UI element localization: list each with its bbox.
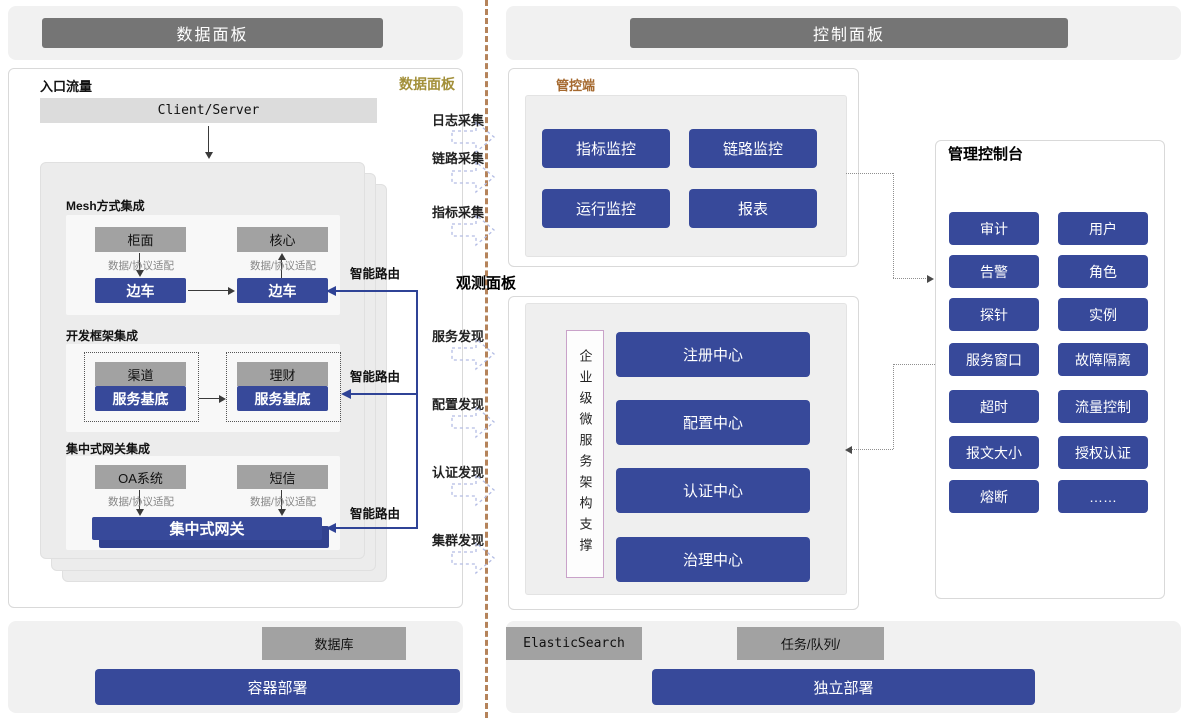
smart-route-branch1-line — [334, 290, 418, 292]
node-governance-center-label: 治理中心 — [683, 549, 743, 570]
node-report: 报表 — [689, 189, 817, 228]
architecture-diagram: 数据面板 控制面板 入口流量 数据面板 Client/Server Mesh方式… — [0, 0, 1189, 720]
mesh-left-adapter-label: 数据/协议适配 — [97, 258, 185, 273]
node-alert: 告警 — [949, 255, 1039, 288]
framework-base-right-label: 服务基底 — [255, 389, 311, 409]
node-message-size-label: 报文大小 — [966, 443, 1022, 463]
mesh-counter-label: 柜面 — [127, 230, 153, 249]
smart-route-branch2-line — [349, 393, 418, 395]
connector-a-arrowhead — [927, 275, 934, 283]
framework-arrow-line — [199, 398, 220, 399]
smart-route-branch3-line — [334, 527, 418, 529]
node-fault-isolation: 故障隔离 — [1058, 343, 1148, 376]
node-instance: 实例 — [1058, 298, 1148, 331]
database-label: 数据库 — [314, 634, 353, 653]
mesh-core-node: 核心 — [237, 227, 328, 252]
microservice-support-box: 企业级微服务架构支撑 — [566, 330, 604, 578]
mesh-core-label: 核心 — [269, 230, 295, 249]
node-config-center-label: 配置中心 — [683, 412, 743, 433]
database-node: 数据库 — [262, 627, 406, 660]
smart-route-branch2-arrowhead — [341, 389, 351, 399]
connector-a-seg2 — [893, 173, 894, 278]
client-server-node: Client/Server — [40, 98, 377, 123]
microservice-support-label: 企业级微服务架构支撑 — [576, 349, 595, 559]
flow-arrow-icon — [450, 541, 496, 575]
framework-base-right-node: 服务基底 — [237, 386, 328, 411]
gateway-oa-node: OA系统 — [95, 465, 186, 489]
standalone-deploy-node: 独立部署 — [652, 669, 1035, 705]
node-config-center: 配置中心 — [616, 400, 810, 445]
node-message-size: 报文大小 — [949, 436, 1039, 469]
smart-route-branch1-arrowhead — [326, 286, 336, 296]
node-fault-isolation-label: 故障隔离 — [1075, 350, 1131, 370]
smart-route-trunk-line — [416, 291, 418, 529]
framework-channel-node: 渠道 — [95, 362, 186, 386]
gateway-sms-label: 短信 — [269, 468, 295, 487]
gateway-right-adapter-label: 数据/协议适配 — [239, 494, 327, 509]
client-server-arrow-line — [208, 126, 209, 152]
node-audit-label: 审计 — [980, 219, 1008, 239]
framework-channel-label: 渠道 — [127, 365, 153, 384]
mesh-right-adapter-label: 数据/协议适配 — [239, 258, 327, 273]
node-more-label: …… — [1089, 489, 1117, 505]
observe-panel-label: 观测面板 — [456, 272, 516, 293]
flow-arrow-icon — [450, 405, 496, 439]
smart-route-label-1: 智能路由 — [350, 263, 400, 282]
framework-section-title: 开发框架集成 — [66, 327, 138, 344]
data-plane-header: 数据面板 — [42, 18, 383, 48]
gateway-right-arrowhead — [278, 509, 286, 516]
node-trace-monitor-label: 链路监控 — [723, 138, 783, 159]
node-audit: 审计 — [949, 212, 1039, 245]
control-plane-header-label: 控制面板 — [813, 21, 885, 45]
gateway-section-title: 集中式网关集成 — [66, 440, 150, 457]
data-plane-header-label: 数据面板 — [176, 21, 248, 45]
client-server-arrowhead — [205, 152, 213, 159]
control-plane-header: 控制面板 — [630, 18, 1068, 48]
node-governance-center: 治理中心 — [616, 537, 810, 582]
mesh-sidecar-right-node: 边车 — [237, 278, 328, 303]
flow-arrow-icon — [450, 160, 496, 194]
framework-wealth-node: 理财 — [237, 362, 328, 386]
smart-route-label-2: 智能路由 — [350, 366, 400, 385]
admin-console-title: 管理控制台 — [948, 143, 1023, 164]
client-server-label: Client/Server — [158, 103, 260, 118]
flow-arrow-icon — [450, 337, 496, 371]
node-probe-label: 探针 — [980, 305, 1008, 325]
gateway-left-arrowhead — [136, 509, 144, 516]
node-metrics-monitor-label: 指标监控 — [576, 138, 636, 159]
control-plane-inner-panel — [525, 95, 847, 257]
node-alert-label: 告警 — [980, 262, 1008, 282]
node-authz-label: 授权认证 — [1075, 443, 1131, 463]
mesh-sidecar-arrowhead — [228, 287, 235, 295]
node-circuit-break: 熔断 — [949, 480, 1039, 513]
node-user: 用户 — [1058, 212, 1148, 245]
node-flow-control: 流量控制 — [1058, 390, 1148, 423]
node-circuit-break-label: 熔断 — [980, 487, 1008, 507]
node-more: …… — [1058, 480, 1148, 513]
framework-arrowhead — [219, 395, 226, 403]
task-queue-node: 任务/队列/ — [737, 627, 884, 660]
connector-b-seg1 — [893, 364, 935, 365]
node-auth-center: 认证中心 — [616, 468, 810, 513]
mesh-counter-node: 柜面 — [95, 227, 186, 252]
framework-base-left-node: 服务基底 — [95, 386, 186, 411]
node-instance-label: 实例 — [1089, 305, 1117, 325]
elasticsearch-label: ElasticSearch — [523, 636, 625, 651]
node-registry-center: 注册中心 — [616, 332, 810, 377]
smart-route-label-3: 智能路由 — [350, 503, 400, 522]
smart-route-branch3-arrowhead — [326, 523, 336, 533]
task-queue-label: 任务/队列/ — [781, 634, 840, 653]
mesh-sidecar-left-label: 边车 — [127, 281, 155, 301]
elasticsearch-node: ElasticSearch — [506, 627, 642, 660]
gateway-oa-label: OA系统 — [118, 468, 163, 487]
gateway-bar-label: 集中式网关 — [169, 518, 244, 539]
gateway-left-adapter-label: 数据/协议适配 — [97, 494, 185, 509]
framework-base-left-label: 服务基底 — [113, 389, 169, 409]
mesh-section-title: Mesh方式集成 — [66, 197, 145, 214]
connector-b-arrowhead — [845, 446, 852, 454]
connector-b-seg2 — [893, 364, 894, 449]
gateway-sms-node: 短信 — [237, 465, 328, 489]
container-deploy-label: 容器部署 — [247, 677, 307, 698]
node-timeout-label: 超时 — [980, 397, 1008, 417]
gateway-bar-node: 集中式网关 — [92, 517, 322, 540]
node-flow-control-label: 流量控制 — [1075, 397, 1131, 417]
framework-wealth-label: 理财 — [269, 365, 295, 384]
node-timeout: 超时 — [949, 390, 1039, 423]
node-service-window-label: 服务窗口 — [966, 350, 1022, 370]
node-trace-monitor: 链路监控 — [689, 129, 817, 168]
node-runtime-monitor: 运行监控 — [542, 189, 670, 228]
node-registry-center-label: 注册中心 — [683, 344, 743, 365]
node-runtime-monitor-label: 运行监控 — [576, 198, 636, 219]
standalone-deploy-label: 独立部署 — [813, 677, 873, 698]
entry-traffic-label: 入口流量 — [40, 76, 92, 95]
control-plane-tag: 管控端 — [556, 75, 595, 94]
node-probe: 探针 — [949, 298, 1039, 331]
node-user-label: 用户 — [1089, 219, 1117, 239]
node-role-label: 角色 — [1089, 262, 1117, 282]
node-service-window: 服务窗口 — [949, 343, 1039, 376]
mesh-sidecar-right-label: 边车 — [269, 281, 297, 301]
flow-arrow-icon — [450, 473, 496, 507]
data-plane-corner-tag: 数据面板 — [355, 74, 455, 94]
mesh-sidecar-left-node: 边车 — [95, 278, 186, 303]
node-report-label: 报表 — [738, 198, 768, 219]
flow-arrow-icon — [450, 213, 496, 247]
container-deploy-node: 容器部署 — [95, 669, 460, 705]
mesh-sidecar-arrow-line — [188, 290, 229, 291]
connector-a-seg3 — [893, 278, 928, 279]
node-role: 角色 — [1058, 255, 1148, 288]
connector-a-seg1 — [846, 173, 893, 174]
connector-b-seg3 — [852, 449, 893, 450]
node-auth-center-label: 认证中心 — [683, 480, 743, 501]
node-metrics-monitor: 指标监控 — [542, 129, 670, 168]
node-authz: 授权认证 — [1058, 436, 1148, 469]
